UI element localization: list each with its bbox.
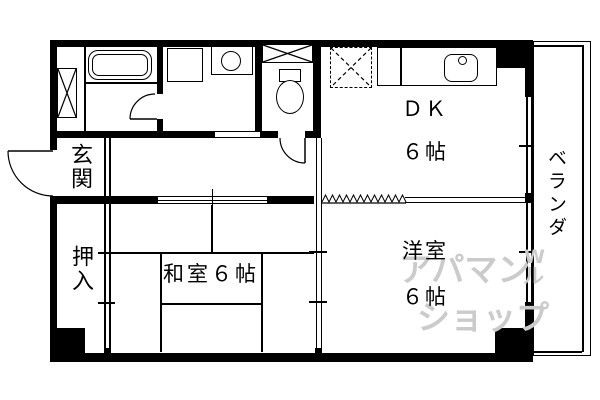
- floor-plan: アパマン ショップ W ル 玄関 押入 和室６帖 ＤＫ ６帖 洋室 ６帖 ベラン…: [0, 0, 600, 400]
- toilet-shelf-x-icon: [263, 45, 312, 62]
- label-youshitsu-size: ６帖: [385, 287, 465, 308]
- entrance-door-arc: [8, 151, 53, 196]
- label-washitsu: 和室６帖: [150, 264, 272, 285]
- label-dk: ＤＫ: [385, 99, 465, 120]
- label-youshitsu: 洋室: [385, 241, 465, 262]
- zigzag-opening: [322, 195, 406, 202]
- toilet-door-arc: [280, 138, 305, 163]
- label-veranda: ベランダ: [546, 148, 565, 240]
- watermark-mark-bottom: ル: [523, 266, 544, 287]
- label-genkan: 玄関: [68, 143, 90, 191]
- label-dk-size: ６帖: [385, 142, 465, 163]
- symbol-layer: [0, 0, 600, 400]
- refrigerator-x-icon: [331, 48, 371, 87]
- bathroom-door-arc: [130, 94, 155, 119]
- pipe-space-x-icon: [58, 69, 76, 117]
- label-oshiire: 押入: [69, 245, 91, 293]
